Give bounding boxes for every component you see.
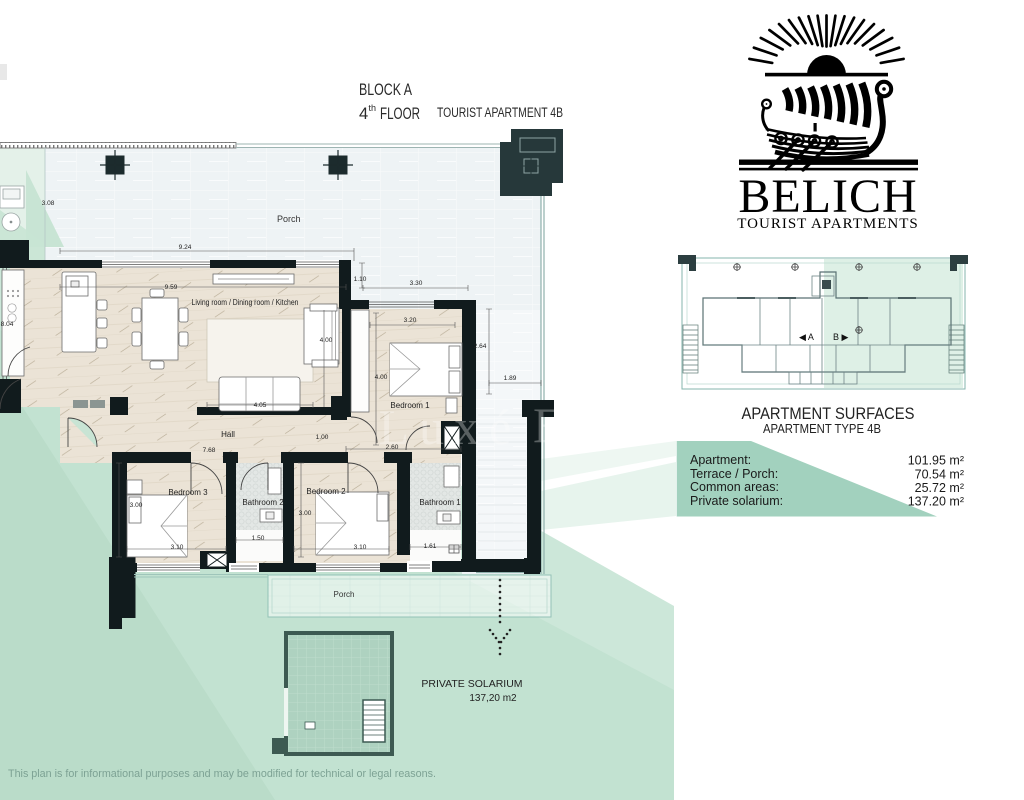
svg-text:PRIVATE SOLARIUM: PRIVATE SOLARIUM xyxy=(421,678,522,690)
svg-text:4.05: 4.05 xyxy=(254,402,267,409)
svg-text:3.10: 3.10 xyxy=(171,544,184,551)
svg-text:BLOCK A: BLOCK A xyxy=(359,81,412,99)
svg-text:4.00: 4.00 xyxy=(375,374,388,381)
svg-text:Bathroom 1: Bathroom 1 xyxy=(419,498,461,507)
svg-text:25.72 m²: 25.72 m² xyxy=(915,481,964,495)
svg-text:Terrace / Porch:: Terrace / Porch: xyxy=(690,467,778,481)
svg-text:Private solarium:: Private solarium: xyxy=(690,494,783,508)
svg-text:7.68: 7.68 xyxy=(203,447,216,454)
svg-text:1.00: 1.00 xyxy=(316,434,329,441)
svg-text:Porch: Porch xyxy=(277,214,301,224)
svg-text:1.89: 1.89 xyxy=(504,375,517,382)
svg-text:4: 4 xyxy=(359,105,368,123)
svg-text:2.64: 2.64 xyxy=(474,343,487,350)
svg-text:TOURIST APARTMENT 4B: TOURIST APARTMENT 4B xyxy=(437,105,563,120)
svg-text:This plan is for informational: This plan is for informational purposes … xyxy=(8,768,436,780)
svg-text:3.00: 3.00 xyxy=(130,502,143,509)
svg-text:1.50: 1.50 xyxy=(252,535,265,542)
svg-text:Bedroom 2: Bedroom 2 xyxy=(306,487,346,496)
svg-text:9.24: 9.24 xyxy=(179,244,192,251)
svg-text:3.08: 3.08 xyxy=(42,200,55,207)
svg-text:3.30: 3.30 xyxy=(410,280,423,287)
svg-text:137.20 m²: 137.20 m² xyxy=(908,495,964,509)
svg-text:101.95 m²: 101.95 m² xyxy=(908,454,964,468)
svg-text:3.20: 3.20 xyxy=(404,317,417,324)
svg-text:Bathroom 2: Bathroom 2 xyxy=(242,498,284,507)
svg-text:9.59: 9.59 xyxy=(165,284,178,291)
svg-text:Living room / Dining room / Ki: Living room / Dining room / Kitchen xyxy=(192,298,299,307)
svg-text:Porch: Porch xyxy=(334,590,355,599)
svg-text:E: E xyxy=(533,397,564,453)
svg-text:FLOOR: FLOOR xyxy=(380,105,420,123)
svg-text:◀ A: ◀ A xyxy=(799,332,814,342)
svg-text:8.04: 8.04 xyxy=(1,321,14,328)
svg-text:3.10: 3.10 xyxy=(354,544,367,551)
svg-text:Common areas:: Common areas: xyxy=(690,480,779,494)
svg-text:B ▶: B ▶ xyxy=(833,332,849,342)
svg-text:4.00: 4.00 xyxy=(320,337,333,344)
svg-text:Hall: Hall xyxy=(221,430,235,439)
svg-text:APARTMENT TYPE 4B: APARTMENT TYPE 4B xyxy=(763,422,881,436)
svg-text:Bedroom 3: Bedroom 3 xyxy=(168,488,208,497)
svg-text:Luxé: Luxé xyxy=(379,399,522,455)
svg-text:Apartment:: Apartment: xyxy=(690,453,751,467)
svg-text:APARTMENT SURFACES: APARTMENT SURFACES xyxy=(742,404,915,423)
svg-text:70.54 m²: 70.54 m² xyxy=(915,468,964,482)
svg-text:1.10: 1.10 xyxy=(354,276,367,283)
svg-text:th: th xyxy=(369,103,377,113)
svg-text:3.00: 3.00 xyxy=(299,510,312,517)
svg-text:TOURIST APARTMENTS: TOURIST APARTMENTS xyxy=(737,216,918,232)
svg-text:137,20 m2: 137,20 m2 xyxy=(469,693,517,704)
svg-text:1.61: 1.61 xyxy=(424,543,437,550)
